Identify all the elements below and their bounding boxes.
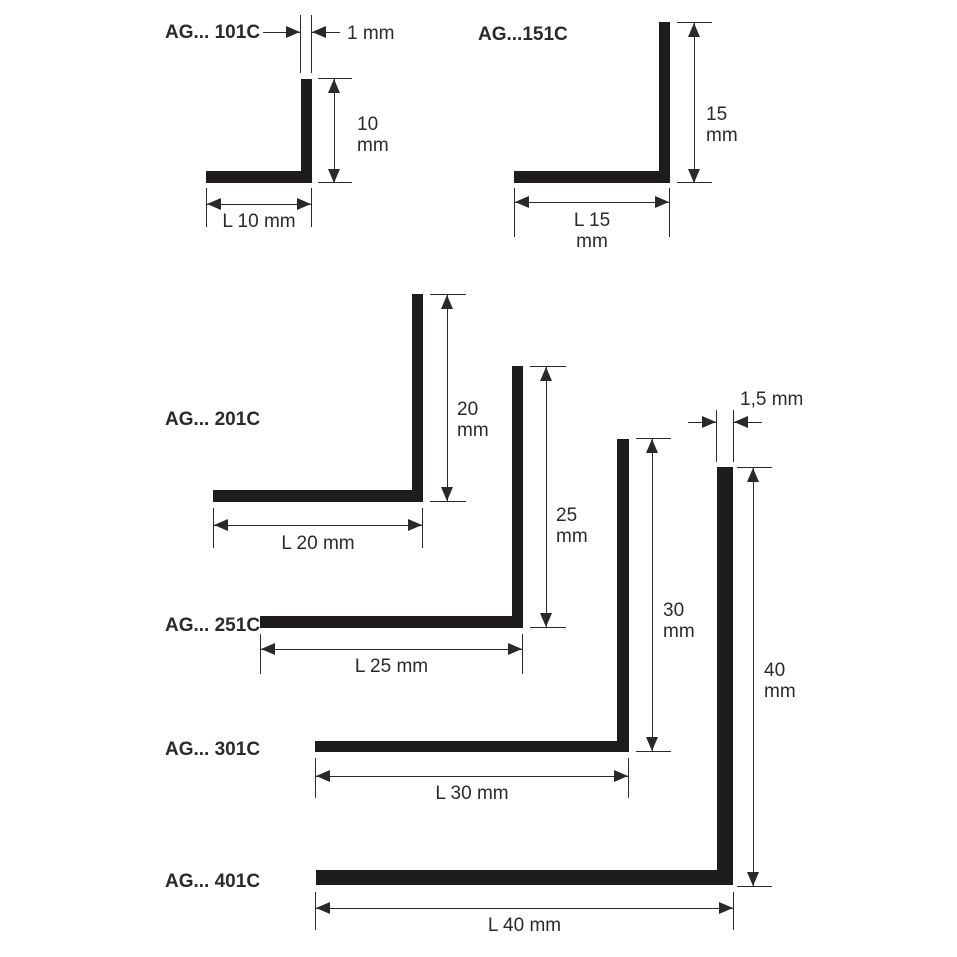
arrow-right-icon bbox=[655, 196, 669, 208]
profile-code-label: AG... 101C bbox=[165, 22, 260, 44]
length-dim-line bbox=[316, 908, 733, 909]
length-dim-line1: L 15 bbox=[514, 210, 670, 231]
angle-horizontal-arm bbox=[514, 171, 670, 183]
height-dim-line bbox=[546, 367, 547, 627]
profile-code-label: AG... 201C bbox=[165, 409, 260, 431]
arrow-up-icon bbox=[540, 367, 552, 381]
arrow-down-icon bbox=[747, 872, 759, 886]
height-dim-tick bbox=[430, 501, 466, 502]
height-dim-line bbox=[447, 295, 448, 501]
height-dim-label: 10 mm bbox=[357, 114, 389, 156]
angle-horizontal-arm bbox=[316, 870, 733, 885]
length-dim-label: L 20 mm bbox=[213, 533, 423, 554]
height-dim-unit: mm bbox=[457, 420, 489, 441]
arrow-right-icon bbox=[719, 902, 733, 914]
angle-profile-dimension-diagram: AG... 101C 1 mm 10 mm L 10 mm AG...151C bbox=[0, 0, 957, 957]
height-dim-label: 40 mm bbox=[764, 660, 796, 702]
arrow-left-icon bbox=[261, 643, 275, 655]
height-dim-unit: mm bbox=[663, 621, 695, 642]
arrow-down-icon bbox=[688, 169, 700, 183]
length-extension-line bbox=[311, 188, 312, 227]
thickness-dim-label: 1 mm bbox=[347, 23, 395, 44]
arrow-left-icon bbox=[207, 198, 221, 210]
height-dim-label: 15 mm bbox=[706, 104, 738, 146]
height-dim-unit: mm bbox=[706, 125, 738, 146]
length-dim-line2: mm bbox=[514, 231, 670, 252]
arrow-right-icon bbox=[614, 770, 628, 782]
height-dim-value: 25 bbox=[556, 505, 588, 526]
height-dim-value: 20 bbox=[457, 399, 489, 420]
angle-vertical-arm bbox=[717, 467, 733, 885]
height-dim-tick bbox=[636, 751, 671, 752]
arrow-up-icon bbox=[747, 468, 759, 482]
profile-code-label: AG... 251C bbox=[165, 615, 260, 637]
height-dim-value: 10 bbox=[357, 114, 389, 135]
profile-code-label: AG... 401C bbox=[165, 871, 260, 893]
arrow-up-icon bbox=[441, 295, 453, 309]
length-extension-line bbox=[733, 892, 734, 930]
length-dim-label: L 30 mm bbox=[315, 783, 629, 804]
length-dim-line bbox=[214, 525, 422, 526]
arrow-down-icon bbox=[646, 737, 658, 751]
angle-vertical-arm bbox=[659, 22, 670, 183]
arrow-right-icon bbox=[508, 643, 522, 655]
arrow-down-icon bbox=[540, 613, 552, 627]
angle-vertical-arm bbox=[412, 294, 423, 502]
arrow-down-icon bbox=[441, 487, 453, 501]
length-dim-label: L 25 mm bbox=[260, 656, 523, 677]
arrow-left-icon bbox=[316, 770, 330, 782]
length-dim-line bbox=[261, 649, 522, 650]
arrow-right-icon bbox=[408, 519, 422, 531]
height-dim-label: 30 mm bbox=[663, 600, 695, 642]
arrow-right-icon bbox=[297, 198, 311, 210]
height-dim-value: 30 bbox=[663, 600, 695, 621]
angle-vertical-arm bbox=[301, 79, 312, 183]
arrow-up-icon bbox=[328, 79, 340, 93]
length-dim-line bbox=[316, 776, 628, 777]
height-dim-line bbox=[652, 439, 653, 751]
height-dim-line bbox=[753, 468, 754, 886]
arrow-left-icon bbox=[316, 902, 330, 914]
height-dim-value: 40 bbox=[764, 660, 796, 681]
length-dim-label: L 40 mm bbox=[316, 915, 733, 936]
angle-vertical-arm bbox=[512, 366, 523, 628]
profile-code-label: AG...151C bbox=[478, 24, 568, 46]
arrow-right-icon bbox=[702, 416, 716, 428]
arrow-left-icon bbox=[312, 26, 326, 38]
height-dim-tick bbox=[737, 886, 772, 887]
arrow-up-icon bbox=[688, 23, 700, 37]
arrow-left-icon bbox=[734, 416, 748, 428]
arrow-left-icon bbox=[214, 519, 228, 531]
height-dim-unit: mm bbox=[357, 135, 389, 156]
height-dim-label: 20 mm bbox=[457, 399, 489, 441]
arrow-left-icon bbox=[515, 196, 529, 208]
length-dim-label: L 10 mm bbox=[207, 211, 311, 232]
height-dim-value: 15 bbox=[706, 104, 738, 125]
height-dim-unit: mm bbox=[556, 526, 588, 547]
angle-horizontal-arm bbox=[213, 490, 423, 502]
angle-horizontal-arm bbox=[260, 616, 523, 628]
angle-vertical-arm bbox=[617, 439, 629, 752]
thickness-extension-line bbox=[716, 410, 717, 462]
profile-code-label: AG... 301C bbox=[165, 739, 260, 761]
thickness-extension-line bbox=[300, 15, 301, 73]
arrow-right-icon bbox=[286, 26, 300, 38]
height-dim-label: 25 mm bbox=[556, 505, 588, 547]
length-dim-line bbox=[515, 202, 669, 203]
arrow-up-icon bbox=[646, 439, 658, 453]
angle-horizontal-arm bbox=[206, 171, 312, 183]
length-dim-label: L 15 mm bbox=[514, 210, 670, 252]
thickness-extension-line bbox=[311, 15, 312, 73]
height-dim-unit: mm bbox=[764, 681, 796, 702]
height-dim-tick bbox=[530, 627, 566, 628]
height-dim-line bbox=[334, 79, 335, 183]
height-dim-line bbox=[694, 23, 695, 183]
arrow-down-icon bbox=[328, 169, 340, 183]
angle-horizontal-arm bbox=[315, 741, 629, 752]
length-dim-line bbox=[207, 204, 311, 205]
thickness-dim-label: 1,5 mm bbox=[740, 389, 803, 410]
